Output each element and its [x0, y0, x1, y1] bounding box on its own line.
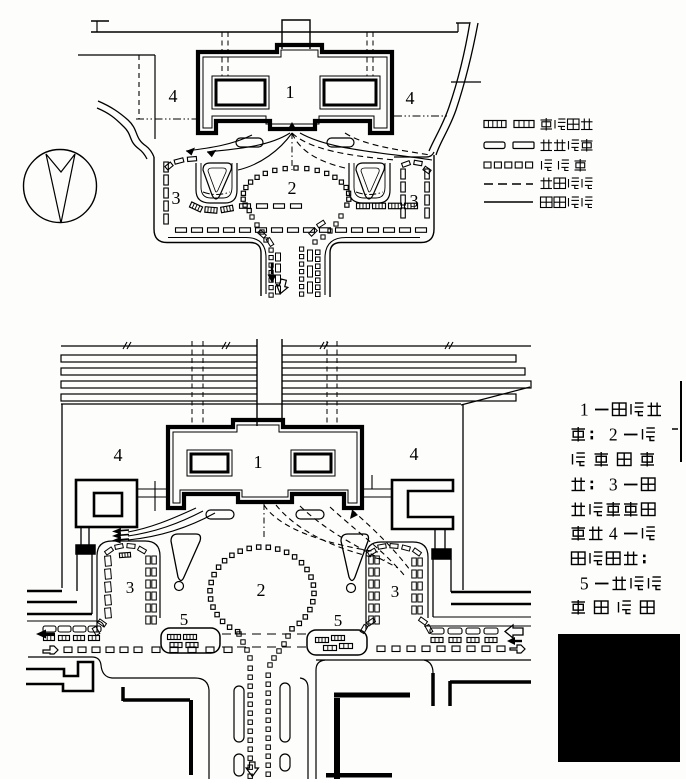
svg-text:3: 3: [609, 475, 618, 495]
svg-text:3: 3: [391, 582, 400, 601]
svg-text:3: 3: [172, 188, 181, 208]
svg-text:4: 4: [609, 524, 618, 544]
svg-text:4: 4: [406, 88, 415, 108]
svg-text:1: 1: [254, 452, 263, 472]
svg-text:4: 4: [114, 445, 123, 465]
svg-text:2: 2: [288, 178, 297, 198]
svg-text:4: 4: [169, 86, 178, 106]
svg-text:5: 5: [580, 574, 589, 594]
svg-text:2: 2: [609, 425, 618, 445]
svg-text:2: 2: [257, 580, 266, 600]
svg-text:5: 5: [180, 610, 189, 629]
svg-text:1: 1: [580, 400, 589, 420]
svg-text:5: 5: [334, 611, 343, 630]
svg-text:4: 4: [410, 444, 419, 464]
svg-text:3: 3: [126, 578, 135, 597]
svg-text:1: 1: [286, 82, 295, 102]
